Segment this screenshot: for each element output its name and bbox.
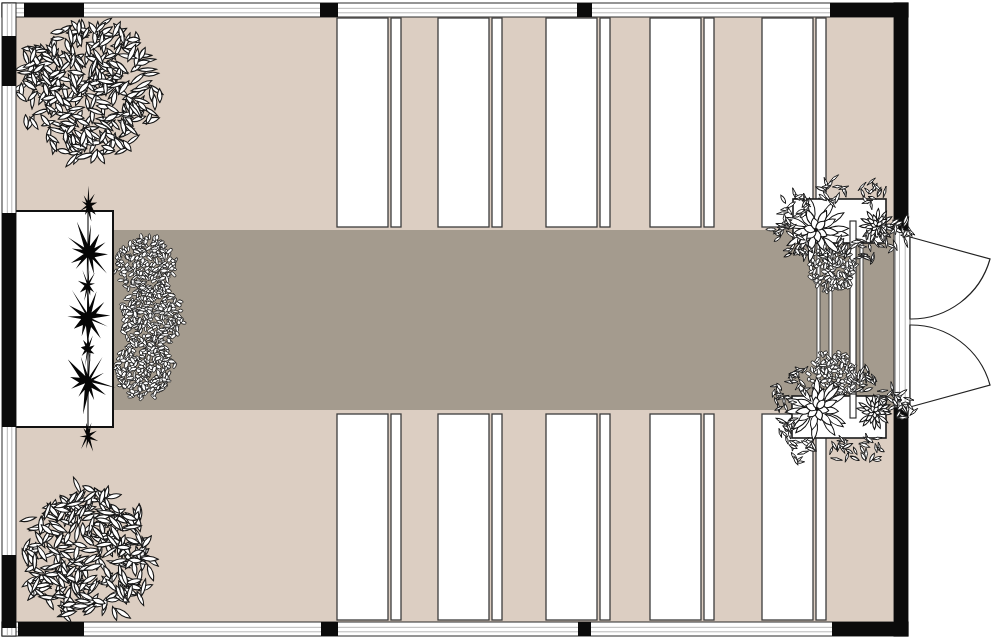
- bench-row-wide[interactable]: [337, 18, 388, 227]
- bench-row-wide[interactable]: [546, 414, 597, 620]
- wall-black-segment: [2, 555, 16, 628]
- wall-black-segment: [2, 36, 16, 86]
- bench-row-wide[interactable]: [650, 18, 701, 227]
- entry-double-doors[interactable]: [910, 237, 990, 407]
- wall-black-segment: [2, 213, 16, 427]
- door-leaf[interactable]: [910, 237, 990, 319]
- bench-row-narrow[interactable]: [492, 414, 502, 620]
- floor-plan-canvas: [0, 0, 1000, 641]
- door-threshold: [895, 231, 910, 407]
- stage-altar-table[interactable]: [13, 186, 116, 452]
- door-leaf[interactable]: [910, 325, 990, 407]
- bench-row-wide[interactable]: [438, 18, 489, 227]
- wall-black-segment: [578, 622, 591, 636]
- arch-pole-overlap: [850, 394, 856, 418]
- bench-row-wide[interactable]: [438, 414, 489, 620]
- bench-row-narrow[interactable]: [704, 18, 714, 227]
- bench-row-narrow[interactable]: [816, 414, 826, 620]
- wall-top: [2, 3, 908, 17]
- aisle-runner[interactable]: [113, 230, 896, 410]
- wall-black-segment: [18, 622, 84, 636]
- wall-black-segment: [894, 407, 908, 633]
- stage-platform[interactable]: [13, 211, 113, 427]
- entry-door-frame[interactable]: [895, 231, 910, 407]
- bench-row-narrow[interactable]: [600, 414, 610, 620]
- wall-black-segment: [320, 3, 338, 17]
- floor-plan-page: [0, 0, 1000, 641]
- bench-row-narrow[interactable]: [492, 18, 502, 227]
- wall-black-segment: [577, 3, 592, 17]
- bench-row-wide[interactable]: [337, 414, 388, 620]
- aisle-carpet[interactable]: [113, 230, 896, 410]
- bench-row-narrow[interactable]: [391, 18, 401, 227]
- bench-row-narrow[interactable]: [704, 414, 714, 620]
- bench-row-wide[interactable]: [546, 18, 597, 227]
- bench-row-narrow[interactable]: [391, 414, 401, 620]
- bench-row-narrow[interactable]: [600, 18, 610, 227]
- wall-bottom: [2, 622, 908, 636]
- wall-black-segment: [894, 5, 908, 231]
- wall-black-segment: [321, 622, 338, 636]
- bench-row-wide[interactable]: [650, 414, 701, 620]
- wall-black-segment: [24, 3, 84, 17]
